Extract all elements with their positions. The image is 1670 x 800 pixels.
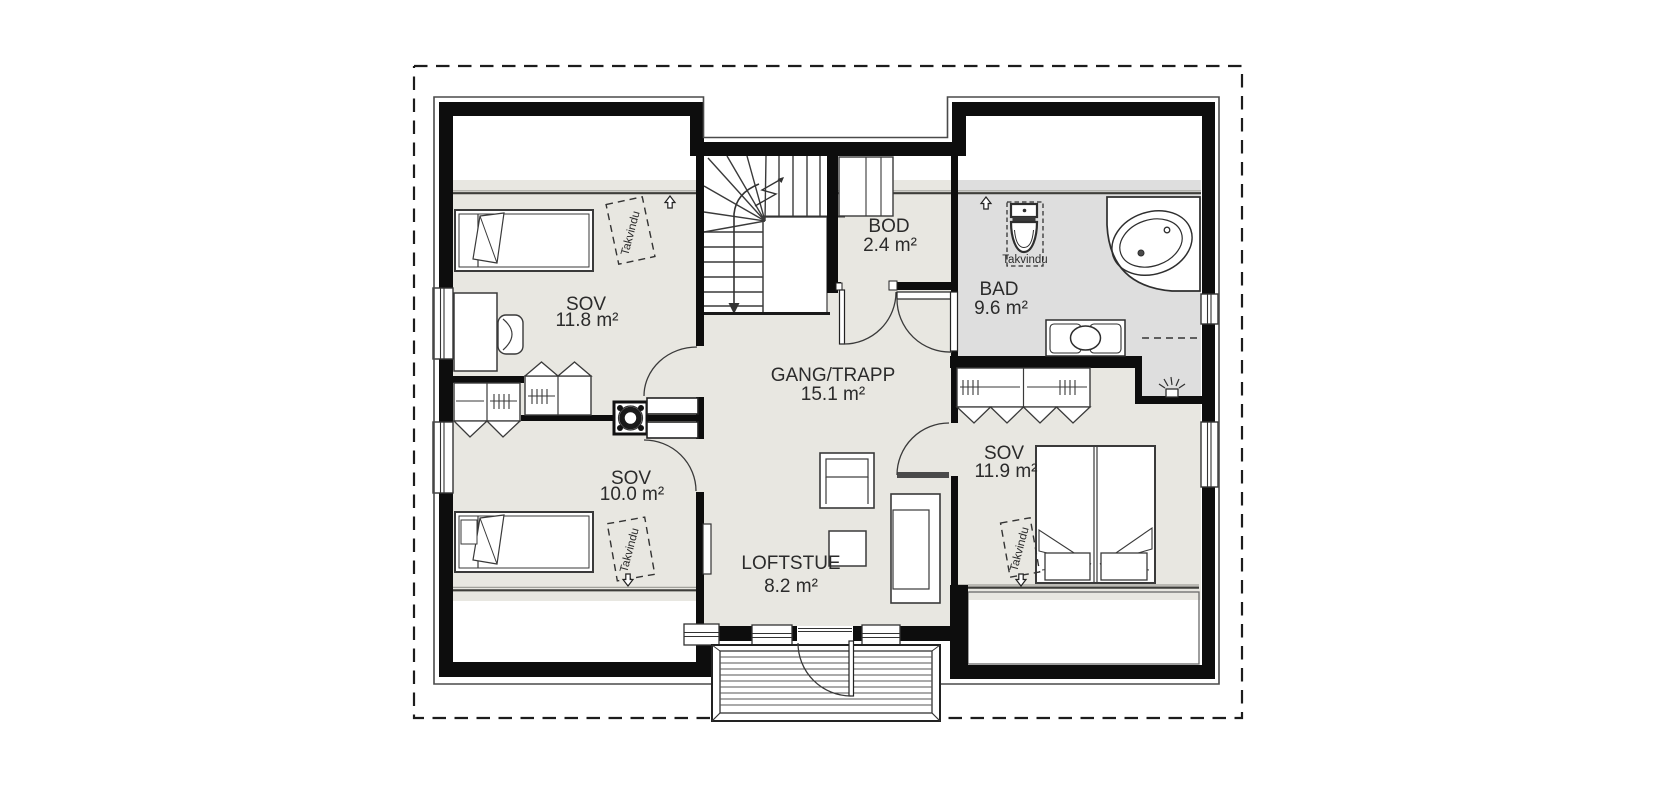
- svg-text:GANG/TRAPP: GANG/TRAPP: [771, 365, 896, 386]
- svg-text:LOFTSTUE: LOFTSTUE: [741, 553, 840, 574]
- svg-text:10.0 m²: 10.0 m²: [600, 484, 664, 505]
- svg-text:11.9 m²: 11.9 m²: [974, 461, 1037, 482]
- svg-text:Takvindu: Takvindu: [1002, 254, 1047, 266]
- svg-text:BAD: BAD: [979, 279, 1018, 300]
- svg-text:11.8 m²: 11.8 m²: [555, 310, 618, 331]
- svg-text:BOD: BOD: [868, 216, 909, 237]
- svg-text:9.6 m²: 9.6 m²: [974, 298, 1028, 319]
- svg-text:2.4 m²: 2.4 m²: [863, 235, 917, 256]
- svg-text:15.1 m²: 15.1 m²: [801, 384, 865, 405]
- svg-text:8.2 m²: 8.2 m²: [764, 576, 818, 597]
